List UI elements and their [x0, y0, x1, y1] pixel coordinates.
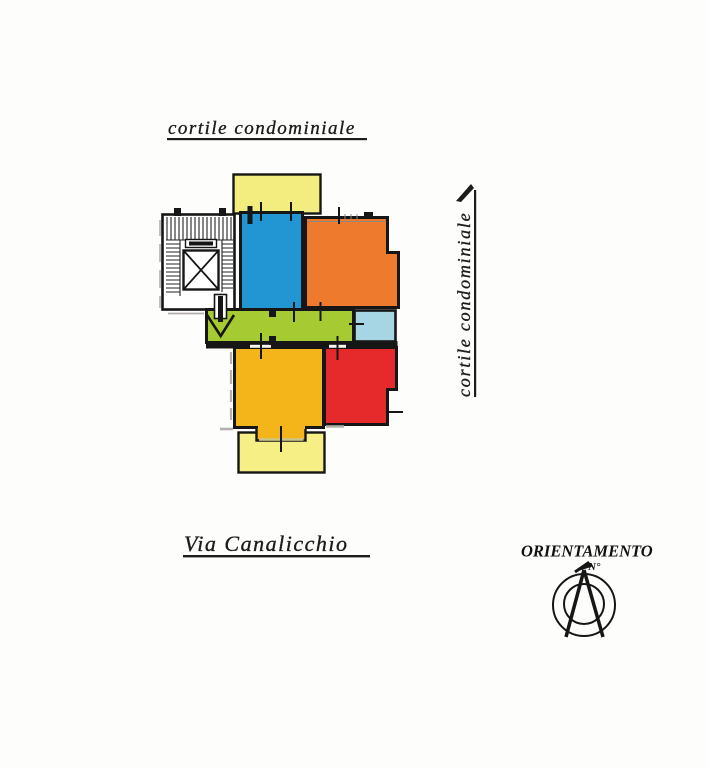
svg-text:cortile condominiale: cortile condominiale	[454, 212, 474, 397]
svg-text:ORIENTAMENTO: ORIENTAMENTO	[521, 542, 653, 561]
svg-text:Via Canalicchio: Via Canalicchio	[184, 531, 348, 556]
svg-text:N°: N°	[587, 561, 601, 573]
svg-text:cortile condominiale: cortile condominiale	[168, 118, 356, 139]
